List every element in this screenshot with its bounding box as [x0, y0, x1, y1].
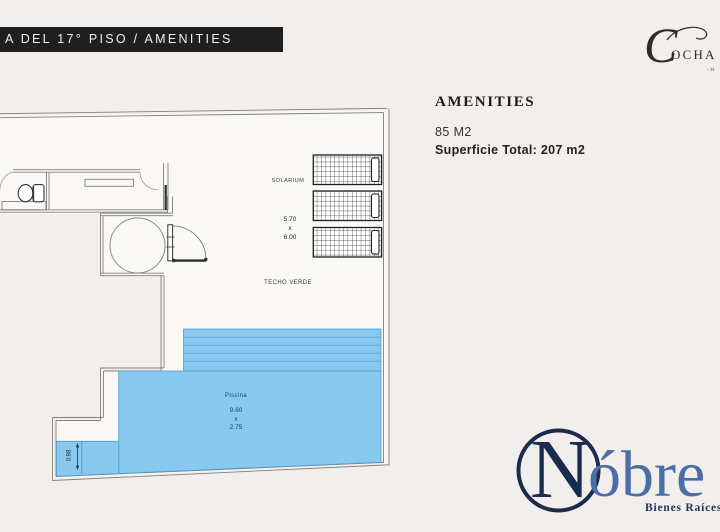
solarium-dimensions: 5.70 x 6.00	[272, 215, 308, 242]
solarium-label: SOLARIUM	[260, 178, 316, 184]
lounger	[313, 228, 381, 258]
solarium-dim-height: 6.00	[272, 233, 308, 242]
toilet-tank	[33, 185, 44, 202]
piscina-label: Piscina	[210, 393, 262, 399]
toilet-bowl	[18, 185, 33, 202]
piscina-dimensions: 9.60 x 2.75	[218, 407, 254, 433]
piscina-dim-height: 2.75	[218, 424, 254, 433]
pool-upper	[184, 329, 382, 371]
piscina-dim-width: 9.60	[218, 407, 254, 416]
agency-logo: N óbre Bienes Raíces	[510, 420, 720, 532]
solarium-dim-width: 5.70	[272, 215, 308, 224]
door-hinge-dot	[172, 259, 176, 263]
agency-subtitle: Bienes Raíces	[645, 502, 720, 514]
door-jamb	[168, 225, 173, 261]
door-arrow-dot	[204, 258, 207, 261]
techo-verde-label: TECHO VERDE	[256, 280, 320, 286]
piscina-dim-sep: x	[218, 416, 254, 425]
page: A DEL 17° PISO / AMENITIES C OCHA - H AM…	[0, 0, 720, 532]
solarium-dim-sep: x	[272, 224, 308, 233]
agency-initial: N	[530, 428, 591, 512]
loungers	[313, 155, 381, 257]
agency-wordmark: óbre	[588, 442, 705, 508]
lounger	[313, 191, 381, 221]
ledge-dimension: 0.98	[66, 446, 75, 466]
lounger	[313, 155, 381, 185]
